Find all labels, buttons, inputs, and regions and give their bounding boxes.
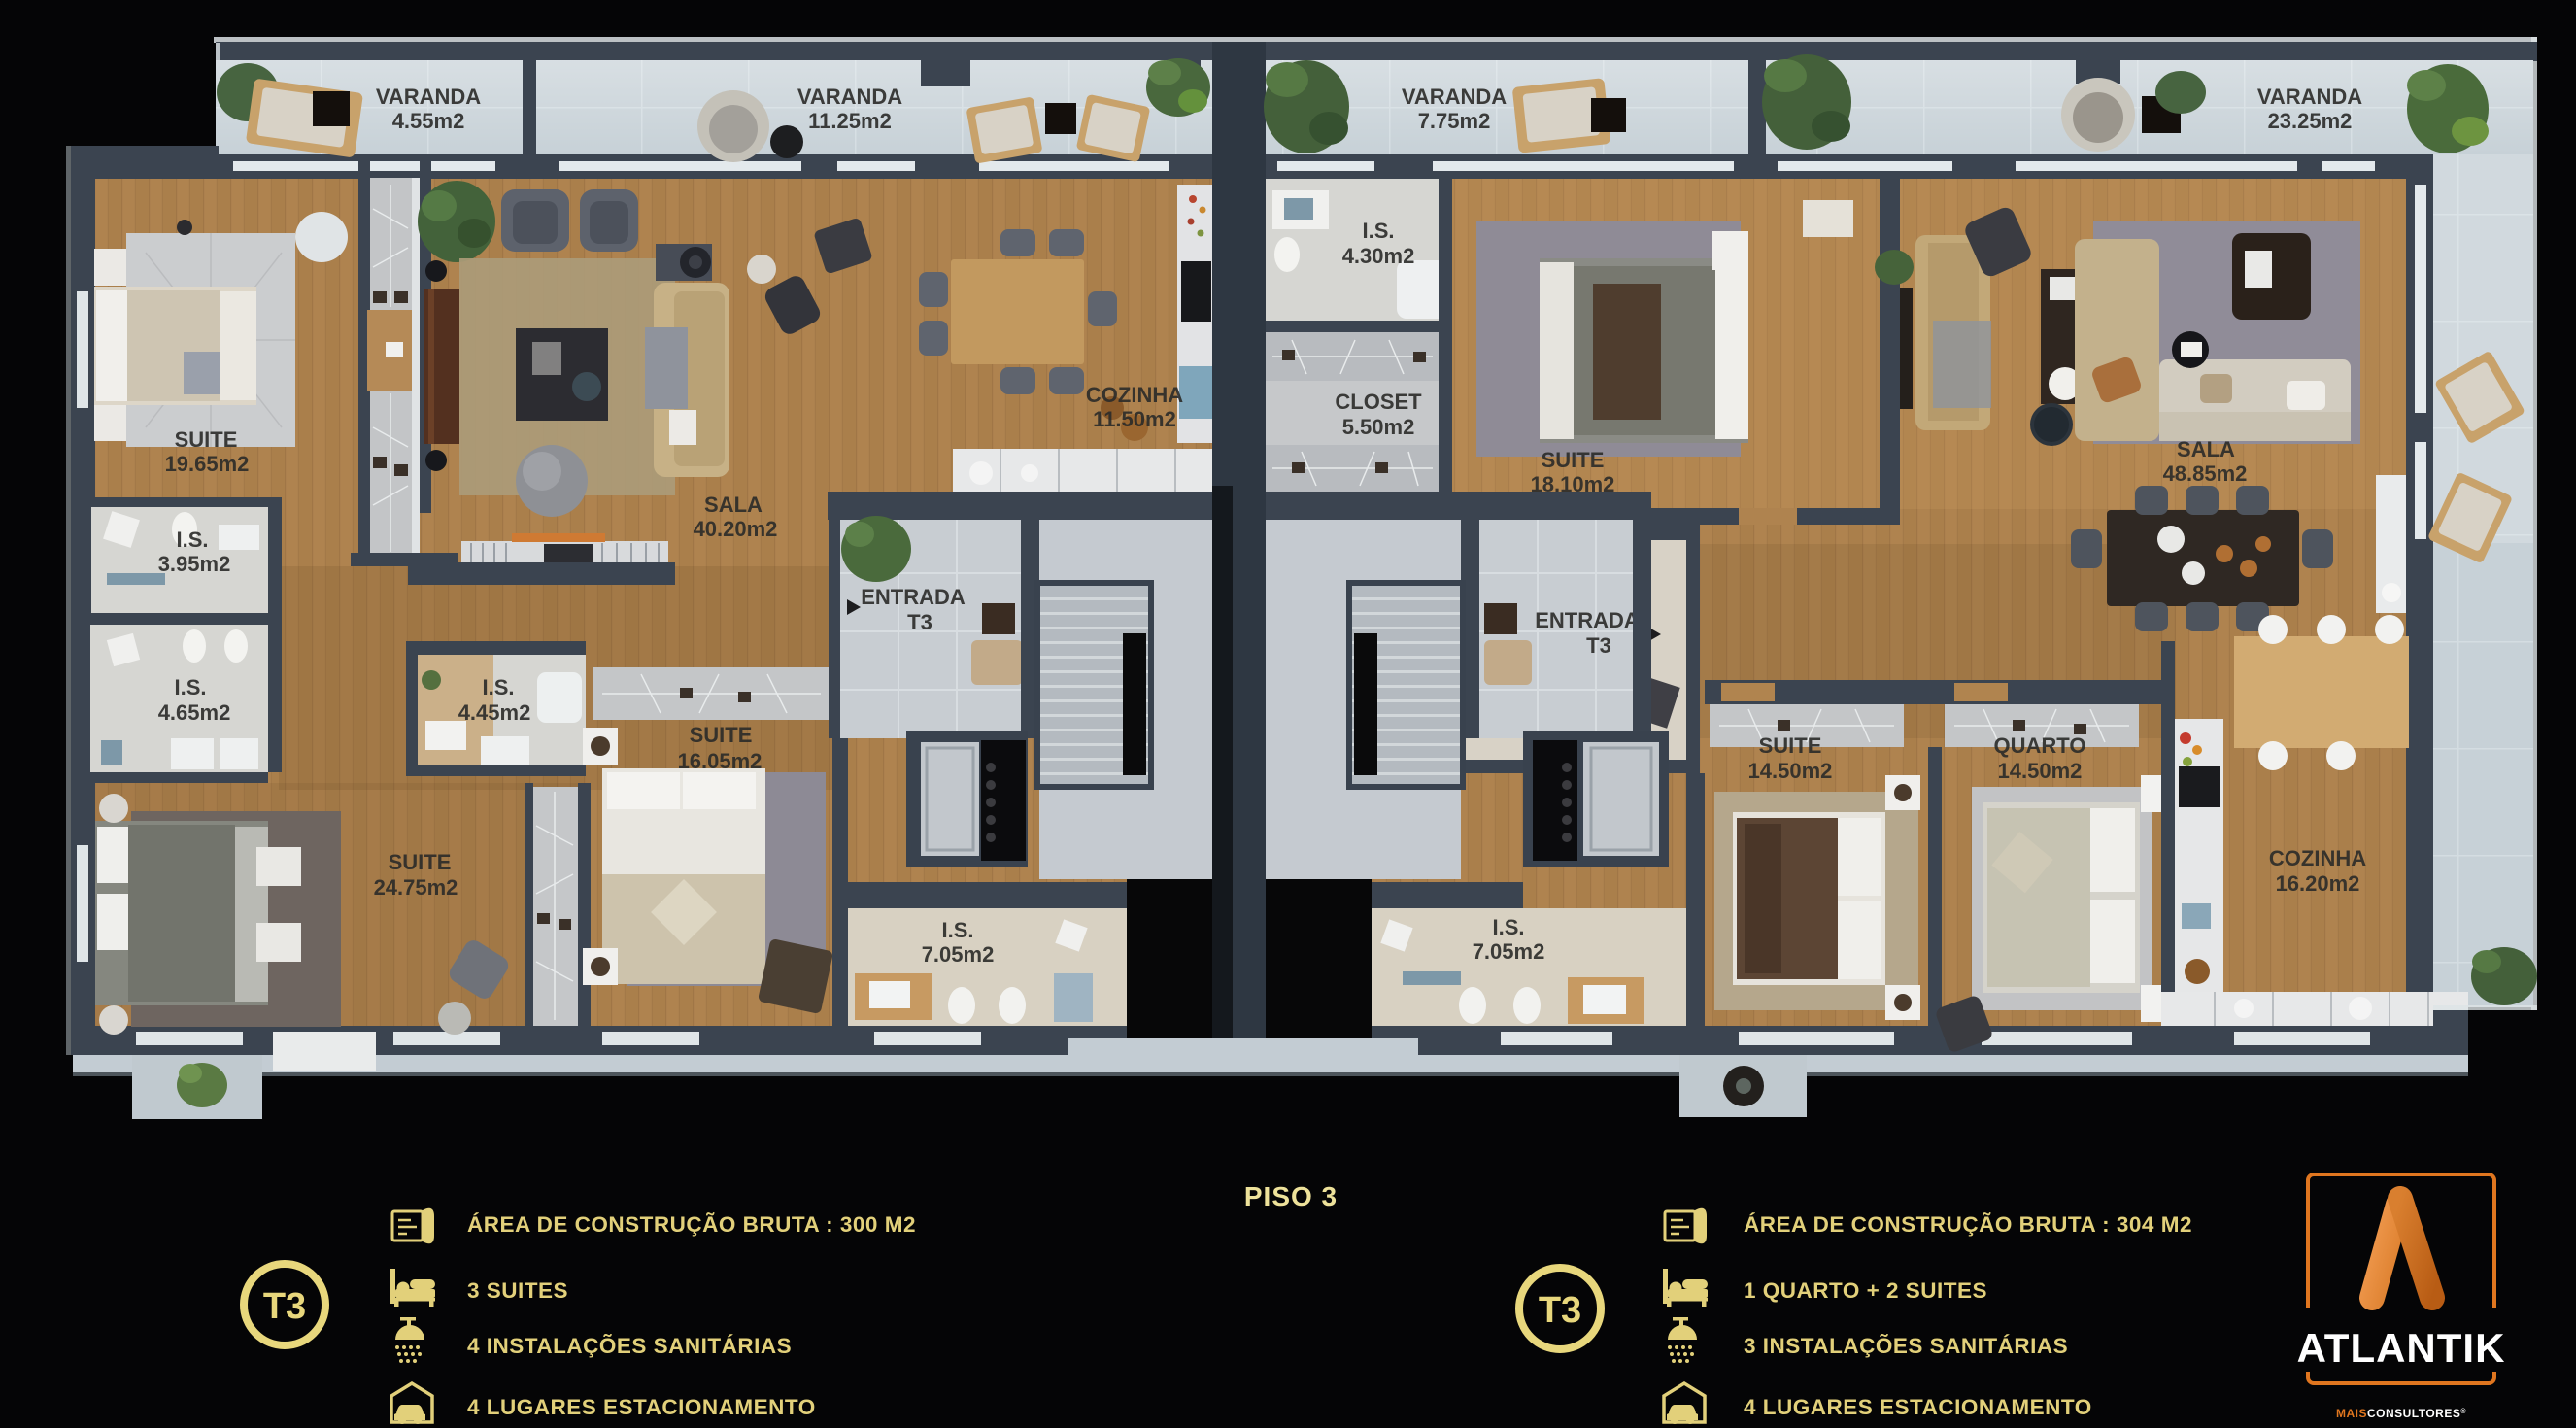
svg-text:T3: T3	[907, 610, 932, 634]
svg-text:ÁREA DE CONSTRUÇÃO BRUTA : 30: ÁREA DE CONSTRUÇÃO BRUTA : 300 M2	[467, 1212, 916, 1237]
svg-text:14.50m2: 14.50m2	[1748, 759, 1833, 783]
svg-text:5.50m2: 5.50m2	[1342, 415, 1415, 439]
svg-text:PISO 3: PISO 3	[1244, 1181, 1338, 1211]
svg-text:VARANDA: VARANDA	[1402, 85, 1507, 109]
svg-text:4.30m2: 4.30m2	[1342, 244, 1415, 268]
svg-text:3 INSTALAÇÕES SANITÁRIAS: 3 INSTALAÇÕES SANITÁRIAS	[1744, 1334, 2068, 1358]
svg-text:11.50m2: 11.50m2	[1093, 407, 1176, 431]
svg-text:7.05m2: 7.05m2	[1473, 939, 1545, 964]
svg-text:3 SUITES: 3 SUITES	[467, 1278, 568, 1303]
svg-text:T3: T3	[263, 1286, 306, 1327]
svg-text:T3: T3	[1586, 633, 1611, 658]
svg-text:4 LUGARES ESTACIONAMENTO: 4 LUGARES ESTACIONAMENTO	[1744, 1395, 2092, 1419]
svg-text:1 QUARTO + 2 SUITES: 1 QUARTO + 2 SUITES	[1744, 1278, 1987, 1303]
svg-text:24.75m2: 24.75m2	[374, 875, 458, 900]
svg-text:40.20m2: 40.20m2	[694, 517, 778, 541]
svg-text:4.55m2: 4.55m2	[392, 109, 465, 133]
svg-text:4.45m2: 4.45m2	[458, 700, 531, 725]
svg-text:3.95m2: 3.95m2	[158, 552, 231, 576]
svg-text:ENTRADA: ENTRADA	[861, 585, 966, 609]
svg-text:SUITE: SUITE	[1542, 448, 1605, 472]
svg-text:ENTRADA: ENTRADA	[1535, 608, 1640, 632]
svg-text:4 LUGARES ESTACIONAMENTO: 4 LUGARES ESTACIONAMENTO	[467, 1395, 816, 1419]
svg-text:COZINHA: COZINHA	[1086, 383, 1183, 407]
svg-text:SUITE: SUITE	[1759, 733, 1822, 758]
svg-text:4.65m2: 4.65m2	[158, 700, 231, 725]
svg-text:14.50m2: 14.50m2	[1998, 759, 2083, 783]
svg-text:QUARTO: QUARTO	[1994, 733, 2086, 758]
svg-text:ATLANTIK: ATLANTIK	[2297, 1325, 2506, 1371]
svg-text:SALA: SALA	[704, 493, 763, 517]
svg-text:SALA: SALA	[2177, 437, 2235, 461]
svg-text:I.S.: I.S.	[174, 675, 206, 699]
svg-text:VARANDA: VARANDA	[2257, 85, 2362, 109]
svg-text:11.25m2: 11.25m2	[808, 109, 892, 133]
svg-text:7.05m2: 7.05m2	[922, 942, 995, 967]
svg-text:16.20m2: 16.20m2	[2276, 871, 2360, 896]
svg-text:SUITE: SUITE	[690, 723, 753, 747]
svg-text:VARANDA: VARANDA	[797, 85, 902, 109]
svg-text:ÁREA DE CONSTRUÇÃO BRUTA : 30: ÁREA DE CONSTRUÇÃO BRUTA : 304 M2	[1744, 1212, 2192, 1237]
svg-text:T3: T3	[1539, 1290, 1581, 1331]
svg-text:I.S.: I.S.	[1492, 915, 1524, 939]
svg-text:19.65m2: 19.65m2	[165, 452, 250, 476]
svg-text:48.85m2: 48.85m2	[2163, 461, 2248, 486]
svg-text:MAISCONSULTORES®: MAISCONSULTORES®	[2336, 1407, 2466, 1420]
svg-text:I.S.: I.S.	[482, 675, 514, 699]
svg-text:23.25m2: 23.25m2	[2268, 109, 2353, 133]
svg-text:7.75m2: 7.75m2	[1418, 109, 1491, 133]
svg-text:COZINHA: COZINHA	[2269, 846, 2366, 870]
svg-text:VARANDA: VARANDA	[376, 85, 481, 109]
svg-text:SUITE: SUITE	[175, 427, 238, 452]
svg-text:SUITE: SUITE	[389, 850, 452, 874]
svg-text:I.S.: I.S.	[1362, 219, 1394, 243]
svg-text:16.05m2: 16.05m2	[678, 749, 763, 773]
svg-text:I.S.: I.S.	[941, 918, 973, 942]
svg-text:CLOSET: CLOSET	[1335, 390, 1422, 414]
svg-text:I.S.: I.S.	[176, 527, 208, 552]
svg-text:4 INSTALAÇÕES SANITÁRIAS: 4 INSTALAÇÕES SANITÁRIAS	[467, 1334, 792, 1358]
